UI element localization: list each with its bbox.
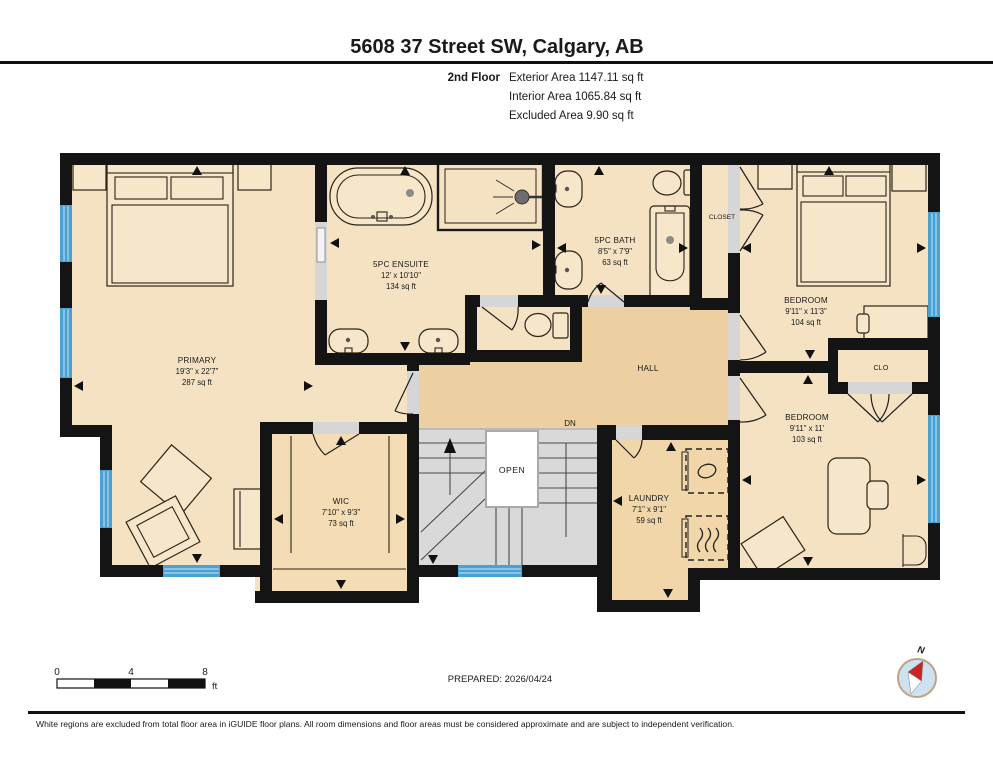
bedroom2-dims: 9'11" x 11'	[790, 424, 825, 433]
desk-icon	[864, 306, 928, 340]
window	[60, 308, 72, 378]
bathtub-icon	[330, 168, 432, 225]
header-rule	[0, 61, 993, 64]
exterior-area: Exterior Area 1147.11 sq ft	[509, 72, 644, 84]
floorplan-page: { "header": { "title": "5608 37 Street S…	[0, 0, 993, 768]
stairwell-open-label: OPEN	[499, 465, 525, 475]
disclaimer-text: White regions are excluded from total fl…	[36, 719, 734, 729]
wic-area: 73 sq ft	[328, 519, 354, 528]
scale-bar: 0 4 8 ft	[54, 667, 217, 692]
primary-area: 287 sq ft	[182, 378, 213, 387]
dresser-icon	[234, 489, 263, 549]
bed-icon	[107, 164, 233, 286]
chair-icon	[867, 481, 888, 509]
bedroom2-label: BEDROOM	[785, 413, 829, 422]
prepared-date: PREPARED: 2026/04/24	[448, 674, 552, 685]
bedroom1-area: 104 sq ft	[791, 318, 822, 327]
scale-tick-4: 4	[128, 667, 134, 678]
window	[163, 565, 220, 577]
nightstand-icon	[238, 164, 271, 190]
header: 5608 37 Street SW, Calgary, AB 2nd Floor…	[0, 36, 993, 122]
bedroom1-label: BEDROOM	[784, 296, 828, 305]
bath-label: 5PC BATH	[594, 236, 635, 245]
ensuite-area: 134 sq ft	[386, 282, 417, 291]
nightstand-icon	[892, 164, 926, 191]
pocket-door	[315, 222, 327, 300]
laundry-area: 59 sq ft	[636, 516, 662, 525]
shower-head-icon	[515, 190, 529, 204]
window	[928, 415, 940, 523]
bedroom1-dims: 9'11" x 11'3"	[785, 307, 827, 316]
wic-label: WIC	[333, 497, 350, 506]
footer-rule	[28, 711, 965, 714]
laundry-dims: 7'1" x 9'1"	[632, 505, 666, 514]
hall-label: HALL	[637, 364, 659, 373]
window	[928, 212, 940, 317]
nightstand-icon	[758, 164, 792, 189]
primary-label: PRIMARY	[178, 356, 217, 365]
bath-area: 63 sq ft	[602, 258, 628, 267]
bedroom2-area: 103 sq ft	[792, 435, 823, 444]
clo-label: CLO	[874, 365, 889, 372]
primary-dims: 19'3" x 22'7"	[176, 367, 219, 376]
bath-dims: 8'5" x 7'9"	[598, 247, 632, 256]
floor-label: 2nd Floor	[448, 72, 501, 84]
ensuite-dims: 12' x 10'10"	[381, 271, 421, 280]
toilet-icon	[553, 313, 568, 338]
wic-dims: 7'10" x 9'3"	[322, 508, 361, 517]
ensuite-label: 5PC ENSUITE	[373, 260, 429, 269]
compass-north-label: N	[916, 644, 926, 656]
window	[60, 205, 72, 262]
window	[100, 470, 112, 528]
chair-icon	[857, 314, 869, 333]
desk-icon	[828, 458, 870, 534]
stairs-down-label: DN	[564, 419, 576, 428]
laundry-label: LAUNDRY	[629, 494, 670, 503]
nightstand-icon	[73, 164, 106, 190]
scale-tick-0: 0	[54, 667, 60, 678]
page-title: 5608 37 Street SW, Calgary, AB	[350, 36, 643, 58]
scale-unit-label: ft	[212, 681, 218, 692]
excluded-area: Excluded Area 9.90 sq ft	[509, 110, 634, 122]
scale-tick-8: 8	[202, 667, 208, 678]
window	[458, 565, 522, 577]
interior-area: Interior Area 1065.84 sq ft	[509, 91, 642, 103]
compass: N	[898, 644, 936, 697]
closet-label: CLOSET	[709, 214, 735, 221]
